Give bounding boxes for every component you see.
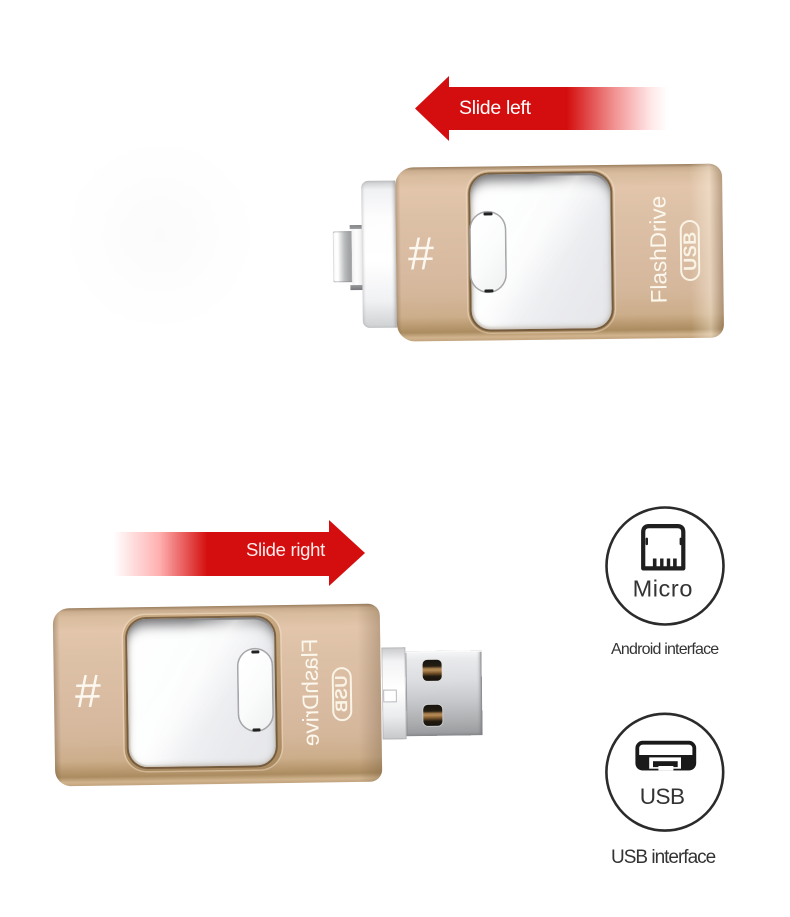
svg-text:USB: USB (640, 784, 685, 809)
svg-text:Micro: Micro (633, 576, 693, 602)
